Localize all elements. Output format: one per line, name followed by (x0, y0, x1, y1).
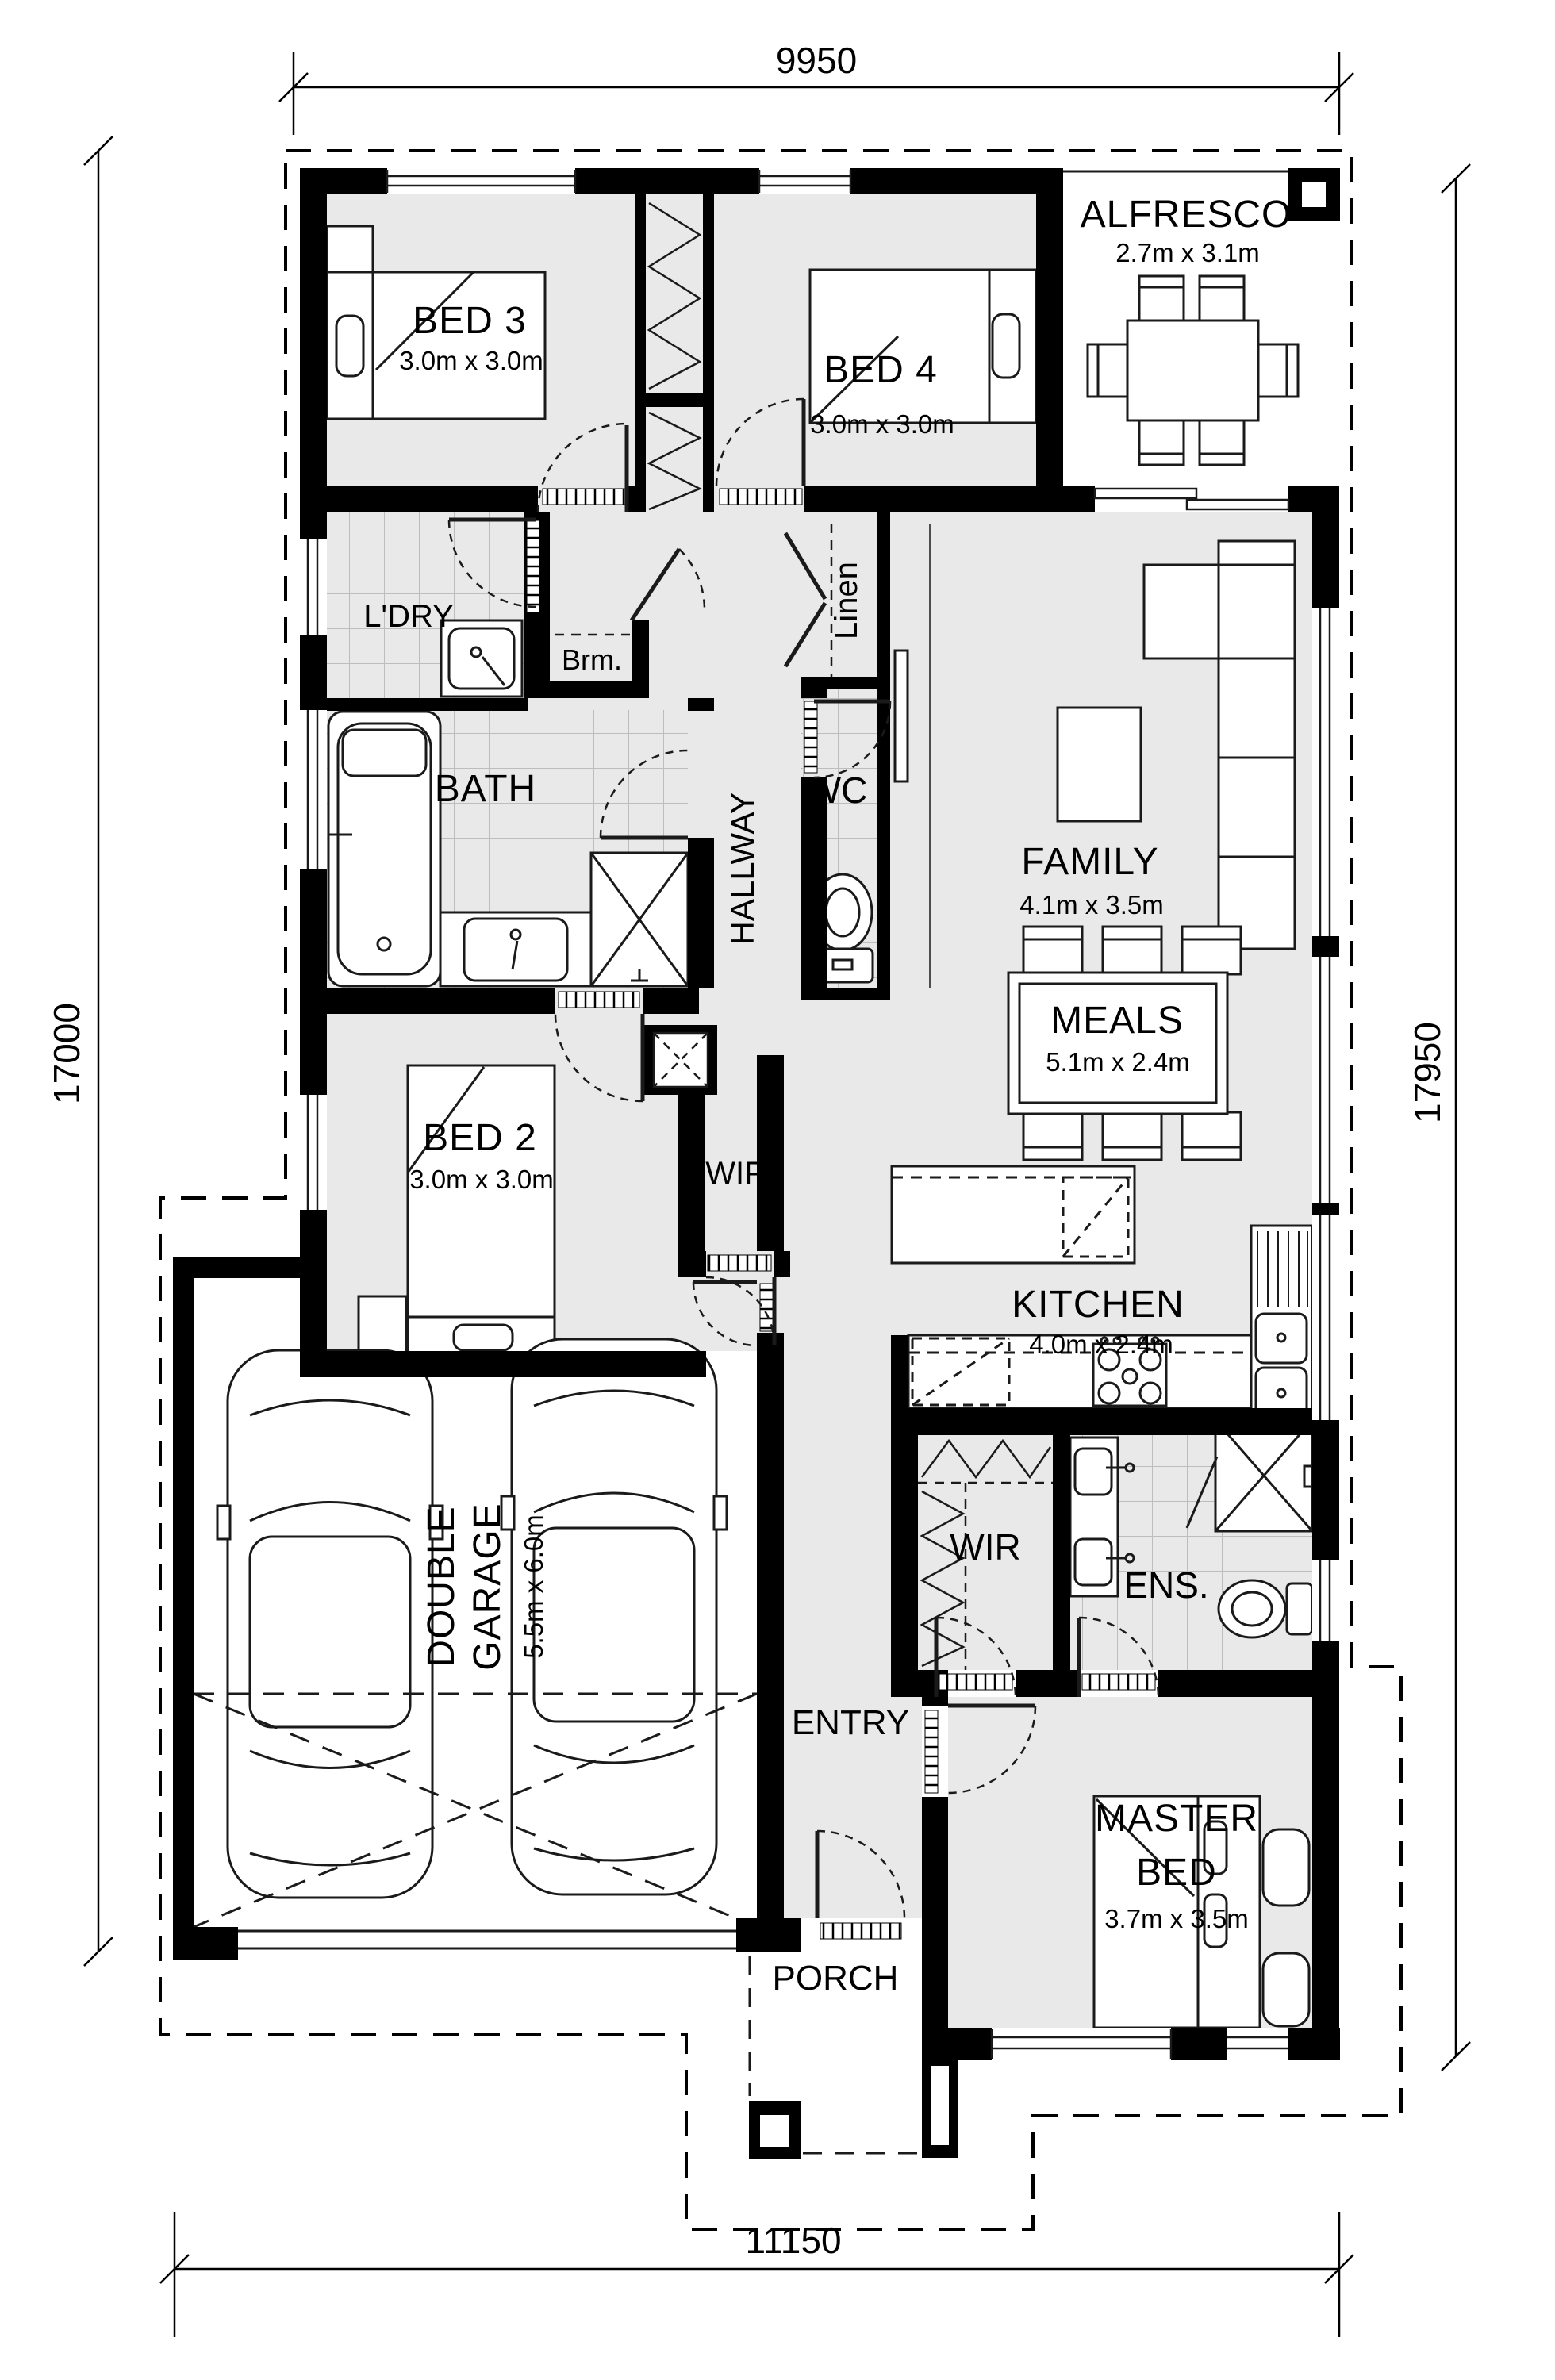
bed3-window (387, 168, 575, 194)
master-window-1 (992, 2028, 1171, 2060)
bath-shower (591, 853, 688, 986)
room-label-wip: WIP (705, 1156, 766, 1191)
dim-right-label: 17950 (1407, 1022, 1448, 1123)
wip-cupboard (644, 1025, 717, 1095)
room-label-garage-line1: DOUBLE (420, 1506, 463, 1667)
room-size-meals: 5.1m x 2.4m (1046, 1047, 1190, 1077)
ldry-window (300, 539, 327, 635)
meals-window (1312, 957, 1339, 1203)
room-label-bed3: BED 3 (413, 300, 527, 342)
room-size-garage: 5.5m x 6.0m (519, 1514, 548, 1659)
room-size-bed3: 3.0m x 3.0m (399, 346, 543, 375)
bed2-window (300, 1095, 327, 1210)
room-size-bed2: 3.0m x 3.0m (409, 1165, 554, 1194)
room-label-meals: MEALS (1050, 1000, 1184, 1042)
room-label-ens: ENS. (1123, 1564, 1208, 1606)
ens-window (1312, 1560, 1339, 1641)
room-label-hallway: HALLWAY (724, 793, 761, 946)
room-label-family: FAMILY (1021, 841, 1158, 883)
room-label-wc: WC (807, 770, 868, 811)
bed4-window (759, 168, 850, 194)
kitchen-sink (1251, 1226, 1312, 1426)
room-label-entry: ENTRY (792, 1703, 909, 1742)
room-label-garage-line2: GARAGE (466, 1503, 509, 1670)
room-size-bed4: 3.0m x 3.0m (810, 409, 954, 439)
room-label-porch: PORCH (773, 1959, 899, 1998)
car-1 (217, 1350, 443, 1898)
floor-plan-svg: 9950 11150 17000 17950 BED 3 3.0m x 3.0m… (0, 0, 1555, 2380)
room-label-wir: WIR (950, 1526, 1020, 1568)
coffee-table (1058, 708, 1141, 821)
room-label-linen: Linen (829, 562, 864, 639)
dim-left-label: 17000 (46, 1003, 87, 1104)
room-label-bath: BATH (435, 768, 536, 810)
bath-vanity (440, 912, 591, 986)
room-label-kitchen: KITCHEN (1012, 1284, 1184, 1326)
family-window (1312, 608, 1339, 936)
room-size-kitchen: 4.0m x 2.4m (1029, 1330, 1173, 1359)
room-label-ldry: L'DRY (363, 599, 454, 634)
room-label-alfresco: ALFRESCO (1081, 194, 1292, 236)
tv-unit (895, 651, 908, 781)
dim-left (84, 136, 113, 1966)
room-label-brm: Brm. (562, 643, 622, 676)
kitchen-island (892, 1166, 1135, 1263)
room-label-master-line1: MASTER (1095, 1798, 1258, 1840)
ens-toilet (1219, 1580, 1312, 1637)
alfresco-sliding-door (1095, 489, 1288, 509)
room-size-alfresco: 2.7m x 3.1m (1115, 238, 1260, 267)
meals-table (1008, 927, 1241, 1160)
room-label-master-line2: BED (1136, 1852, 1217, 1894)
bathtub (328, 712, 440, 986)
room-size-family: 4.1m x 3.5m (1019, 890, 1164, 919)
floor-plan-canvas: 9950 11150 17000 17950 BED 3 3.0m x 3.0m… (0, 0, 1555, 2380)
alfresco-table (1088, 276, 1298, 465)
room-size-master: 3.7m x 3.5m (1104, 1904, 1249, 1933)
dim-top-label: 9950 (776, 40, 857, 81)
bath-window (300, 710, 327, 869)
room-label-bed2: BED 2 (423, 1117, 537, 1159)
master-window-2 (1227, 2028, 1288, 2060)
garage-door (238, 1931, 736, 1948)
dim-bottom-label: 11150 (745, 2220, 841, 2261)
bed4-furniture (810, 270, 1036, 423)
kitchen-window (1312, 1215, 1339, 1420)
room-label-bed4: BED 4 (824, 349, 938, 391)
